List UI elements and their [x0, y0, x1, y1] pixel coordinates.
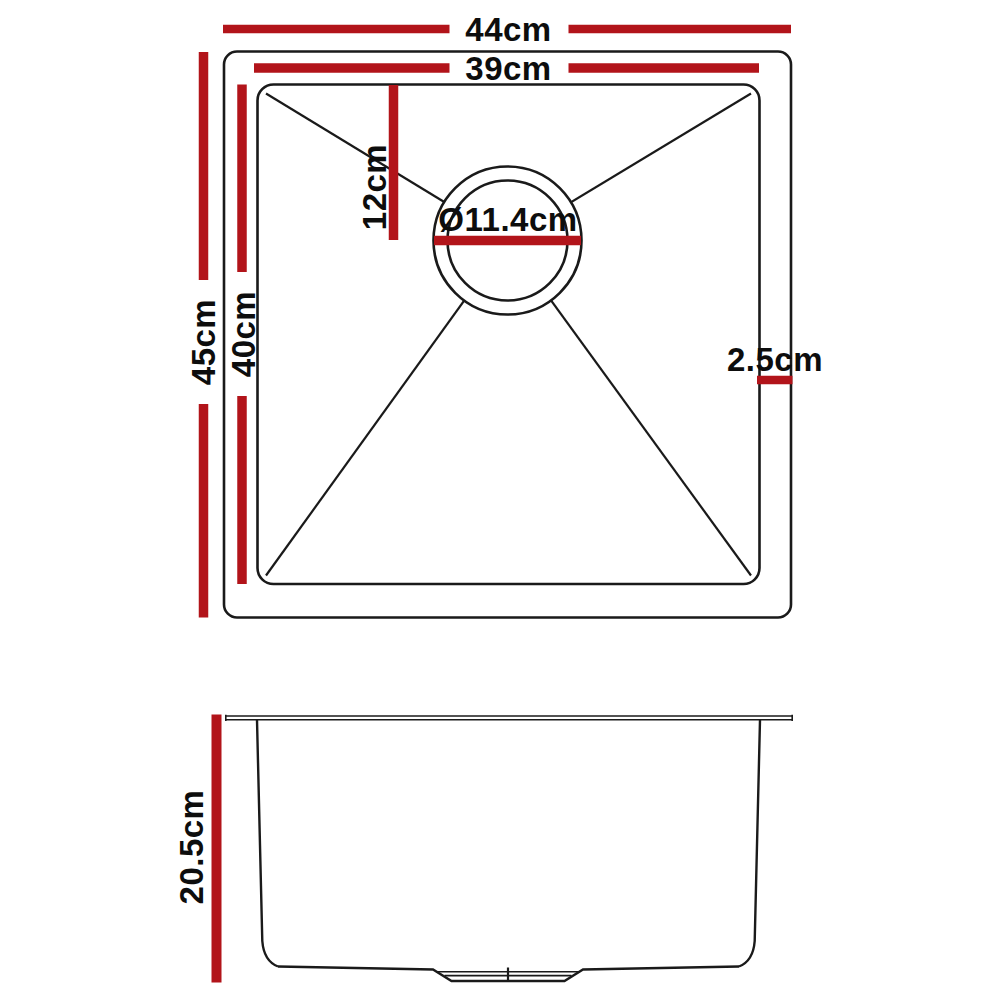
dim-rim-width: 2.5cm	[727, 341, 823, 380]
dim-label-drain-offset: 12cm	[356, 144, 393, 230]
dim-label-inner-width: 39cm	[465, 50, 551, 87]
sink-outer-rim-outline	[224, 52, 791, 618]
sink-dimension-diagram: Ø11.4cm 44cm 39cm 45cm	[0, 0, 999, 1000]
dim-label-rim-width: 2.5cm	[727, 341, 823, 378]
bowl-profile	[257, 720, 760, 981]
dim-label-inner-depth: 40cm	[225, 291, 262, 377]
dim-bowl-depth: 20.5cm	[173, 715, 217, 983]
top-view: Ø11.4cm 44cm 39cm 45cm	[185, 11, 823, 618]
dim-label-drain-diameter: Ø11.4cm	[438, 201, 577, 238]
dim-label-outer-width: 44cm	[465, 11, 551, 48]
side-view: 20.5cm	[173, 715, 793, 983]
dim-outer-depth: 45cm	[185, 52, 222, 618]
drain: Ø11.4cm	[434, 167, 582, 315]
dim-label-bowl-depth: 20.5cm	[173, 790, 210, 905]
dim-outer-width: 44cm	[223, 11, 791, 48]
dim-label-outer-depth: 45cm	[185, 299, 222, 385]
sink-inner-bowl-outline	[258, 85, 760, 585]
dim-inner-depth: 40cm	[225, 85, 262, 585]
diagram-svg: Ø11.4cm 44cm 39cm 45cm	[0, 0, 999, 1000]
bowl-wall-left	[257, 720, 278, 967]
dim-drain-offset: 12cm	[356, 85, 394, 240]
dim-inner-width: 39cm	[254, 50, 759, 87]
rim-lines	[225, 715, 793, 721]
bowl-wall-right	[739, 720, 760, 967]
